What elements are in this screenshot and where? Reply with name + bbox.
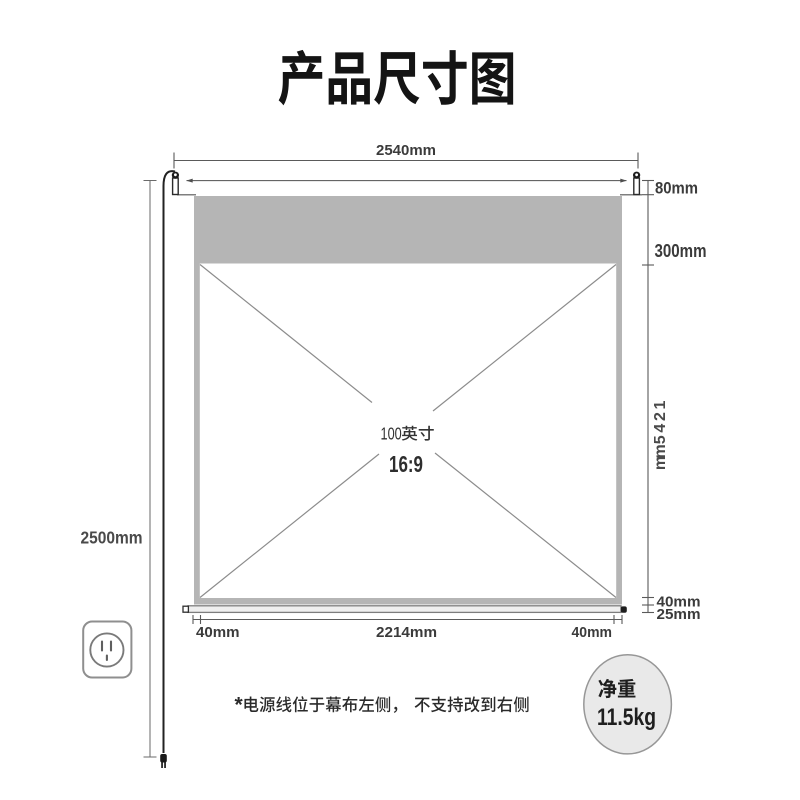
svg-text:2: 2 <box>652 412 669 421</box>
svg-text:100: 100 <box>381 424 402 444</box>
svg-text:2540mm: 2540mm <box>376 143 436 159</box>
svg-text:300mm: 300mm <box>655 240 707 261</box>
svg-text:25mm: 25mm <box>657 606 701 623</box>
svg-text:80mm: 80mm <box>655 180 698 198</box>
svg-text:2500mm: 2500mm <box>81 528 143 548</box>
svg-text:11.5kg: 11.5kg <box>597 704 656 731</box>
svg-text:5: 5 <box>652 435 669 444</box>
svg-text:16:9: 16:9 <box>389 451 423 477</box>
svg-text:4: 4 <box>652 424 669 433</box>
svg-text:40mm: 40mm <box>572 625 613 641</box>
svg-text:40mm: 40mm <box>196 625 240 641</box>
svg-text:1: 1 <box>652 400 669 409</box>
svg-text:*: * <box>235 694 244 717</box>
svg-text:m: m <box>652 456 669 470</box>
svg-text:2214mm: 2214mm <box>376 625 437 641</box>
